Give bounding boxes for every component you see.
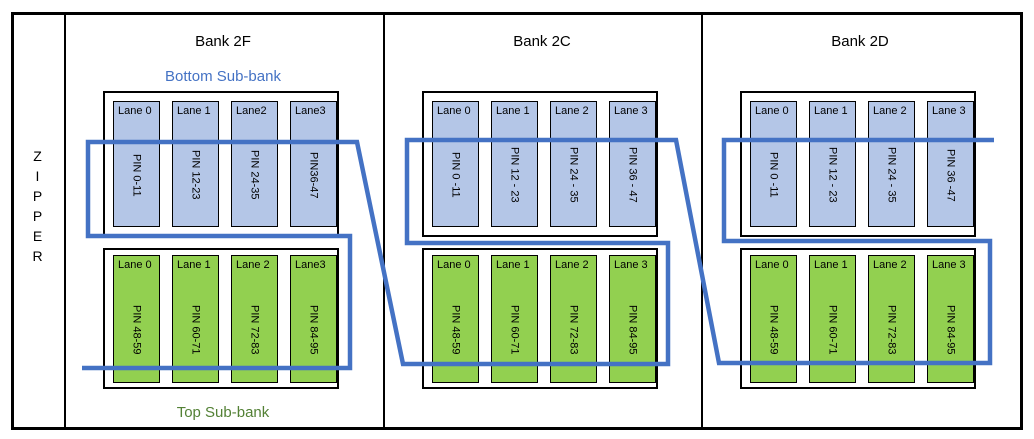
zipper-vertical-label: Z I P P E R: [11, 146, 64, 266]
bank-panel-2f: Bank 2F Bottom Sub-bank Lane 0 PIN 0-11 …: [64, 12, 383, 430]
zipper-letter: Z: [11, 146, 64, 166]
zipper-letter: P: [11, 186, 64, 206]
top-subbank-container: Lane 0 PIN 48-59 Lane 1 PIN 60-71 Lane 2…: [103, 248, 339, 389]
pin-range-label: PIN 72-83: [869, 282, 914, 378]
lane: Lane 1 PIN 12-23: [172, 101, 219, 227]
pin-range-label: PIN36-47: [291, 128, 336, 222]
lane-label: Lane 1: [492, 256, 537, 271]
pin-range-label: PIN 36 -47: [928, 128, 973, 222]
pin-range-label: PIN 84-95: [928, 282, 973, 378]
pin-range-label: PIN 12-23: [173, 128, 218, 222]
lane-label: Lane 2: [869, 256, 914, 271]
lane-label: Lane 1: [810, 256, 855, 271]
lane: Lane 1 PIN 12 - 23: [491, 101, 538, 227]
lane-label: Lane 2: [551, 256, 596, 271]
lane-label: Lane 0: [114, 102, 159, 117]
lane: Lane 2 PIN 72-83: [231, 255, 278, 383]
top-subbank-label: Top Sub-bank: [103, 404, 343, 421]
bank-title: Bank 2C: [422, 33, 662, 50]
zipper-letter: P: [11, 206, 64, 226]
lane: Lane 0 PIN 48-59: [113, 255, 160, 383]
lane-label: Lane 3: [928, 102, 973, 117]
lane-label: Lane 3: [928, 256, 973, 271]
lane-label: Lane 1: [173, 256, 218, 271]
lane: Lane 3 PIN 36 -47: [927, 101, 974, 227]
lane: Lane 0 PIN 48-59: [750, 255, 797, 383]
lane-label: Lane 0: [751, 102, 796, 117]
pin-range-label: PIN 48-59: [751, 282, 796, 378]
pin-range-label: PIN 60-71: [492, 282, 537, 378]
pin-range-label: PIN 0 -11: [433, 128, 478, 222]
lane-label: Lane3: [291, 102, 336, 117]
bottom-subbank-label: Bottom Sub-bank: [103, 68, 343, 85]
pin-range-label: PIN 72-83: [232, 282, 277, 378]
lane: Lane 0 PIN 0-11: [113, 101, 160, 227]
lane-label: Lane 1: [492, 102, 537, 117]
bank-panel-2c: Bank 2C Lane 0 PIN 0 -11 Lane 1 PIN 12 -…: [383, 12, 701, 430]
pin-range-label: PIN 24 - 35: [869, 128, 914, 222]
lane-label: Lane 0: [114, 256, 159, 271]
pin-range-label: PIN 36 - 47: [610, 128, 655, 222]
zipper-letter: I: [11, 166, 64, 186]
lane: Lane 0 PIN 48-59: [432, 255, 479, 383]
pin-range-label: PIN 48-59: [114, 282, 159, 378]
lane-label: Lane 2: [869, 102, 914, 117]
lane-label: Lane 3: [610, 256, 655, 271]
pin-range-label: PIN 0 -11: [751, 128, 796, 222]
top-subbank-container: Lane 0 PIN 48-59 Lane 1 PIN 60-71 Lane 2…: [740, 248, 976, 389]
lane: Lane3 PIN 84-95: [290, 255, 337, 383]
pin-range-label: PIN 24 - 35: [551, 128, 596, 222]
lane-label: Lane2: [232, 102, 277, 117]
pin-range-label: PIN 60-71: [810, 282, 855, 378]
pin-range-label: PIN 84-95: [291, 282, 336, 378]
zipper-bank-diagram: Z I P P E R Bank 2F Bottom Sub-bank Lane…: [0, 0, 1034, 439]
lane: Lane 2 PIN 24 - 35: [868, 101, 915, 227]
lane: Lane 3 PIN 36 - 47: [609, 101, 656, 227]
lane: Lane 1 PIN 60-71: [809, 255, 856, 383]
lane: Lane 1 PIN 12 - 23: [809, 101, 856, 227]
lane: Lane 1 PIN 60-71: [491, 255, 538, 383]
lane: Lane 2 PIN 72-83: [550, 255, 597, 383]
pin-range-label: PIN 84-95: [610, 282, 655, 378]
bottom-subbank-container: Lane 0 PIN 0 -11 Lane 1 PIN 12 - 23 Lane…: [740, 91, 976, 237]
pin-range-label: PIN 12 - 23: [810, 128, 855, 222]
lane-label: Lane3: [291, 256, 336, 271]
lane-label: Lane 2: [551, 102, 596, 117]
lane-label: Lane 0: [751, 256, 796, 271]
zipper-letter: E: [11, 226, 64, 246]
zipper-letter: R: [11, 246, 64, 266]
lane: Lane 3 PIN 84-95: [609, 255, 656, 383]
bank-title: Bank 2D: [740, 33, 980, 50]
bank-panel-2d: Bank 2D Lane 0 PIN 0 -11 Lane 1 PIN 12 -…: [701, 12, 1021, 430]
lane-label: Lane 0: [433, 256, 478, 271]
lane-label: Lane 1: [810, 102, 855, 117]
top-subbank-container: Lane 0 PIN 48-59 Lane 1 PIN 60-71 Lane 2…: [422, 248, 658, 389]
pin-range-label: PIN 24-35: [232, 128, 277, 222]
pin-range-label: PIN 60-71: [173, 282, 218, 378]
lane-label: Lane 3: [610, 102, 655, 117]
pin-range-label: PIN 72-83: [551, 282, 596, 378]
lane: Lane3 PIN36-47: [290, 101, 337, 227]
bottom-subbank-container: Lane 0 PIN 0-11 Lane 1 PIN 12-23 Lane2 P…: [103, 91, 339, 237]
lane: Lane 0 PIN 0 -11: [432, 101, 479, 227]
lane: Lane 2 PIN 72-83: [868, 255, 915, 383]
lane: Lane 2 PIN 24 - 35: [550, 101, 597, 227]
bank-title: Bank 2F: [103, 33, 343, 50]
lane-label: Lane 1: [173, 102, 218, 117]
lane: Lane 3 PIN 84-95: [927, 255, 974, 383]
lane-label: Lane 2: [232, 256, 277, 271]
pin-range-label: PIN 12 - 23: [492, 128, 537, 222]
lane: Lane 1 PIN 60-71: [172, 255, 219, 383]
pin-range-label: PIN 0-11: [114, 128, 159, 222]
pin-range-label: PIN 48-59: [433, 282, 478, 378]
lane: Lane2 PIN 24-35: [231, 101, 278, 227]
bottom-subbank-container: Lane 0 PIN 0 -11 Lane 1 PIN 12 - 23 Lane…: [422, 91, 658, 237]
lane-label: Lane 0: [433, 102, 478, 117]
lane: Lane 0 PIN 0 -11: [750, 101, 797, 227]
